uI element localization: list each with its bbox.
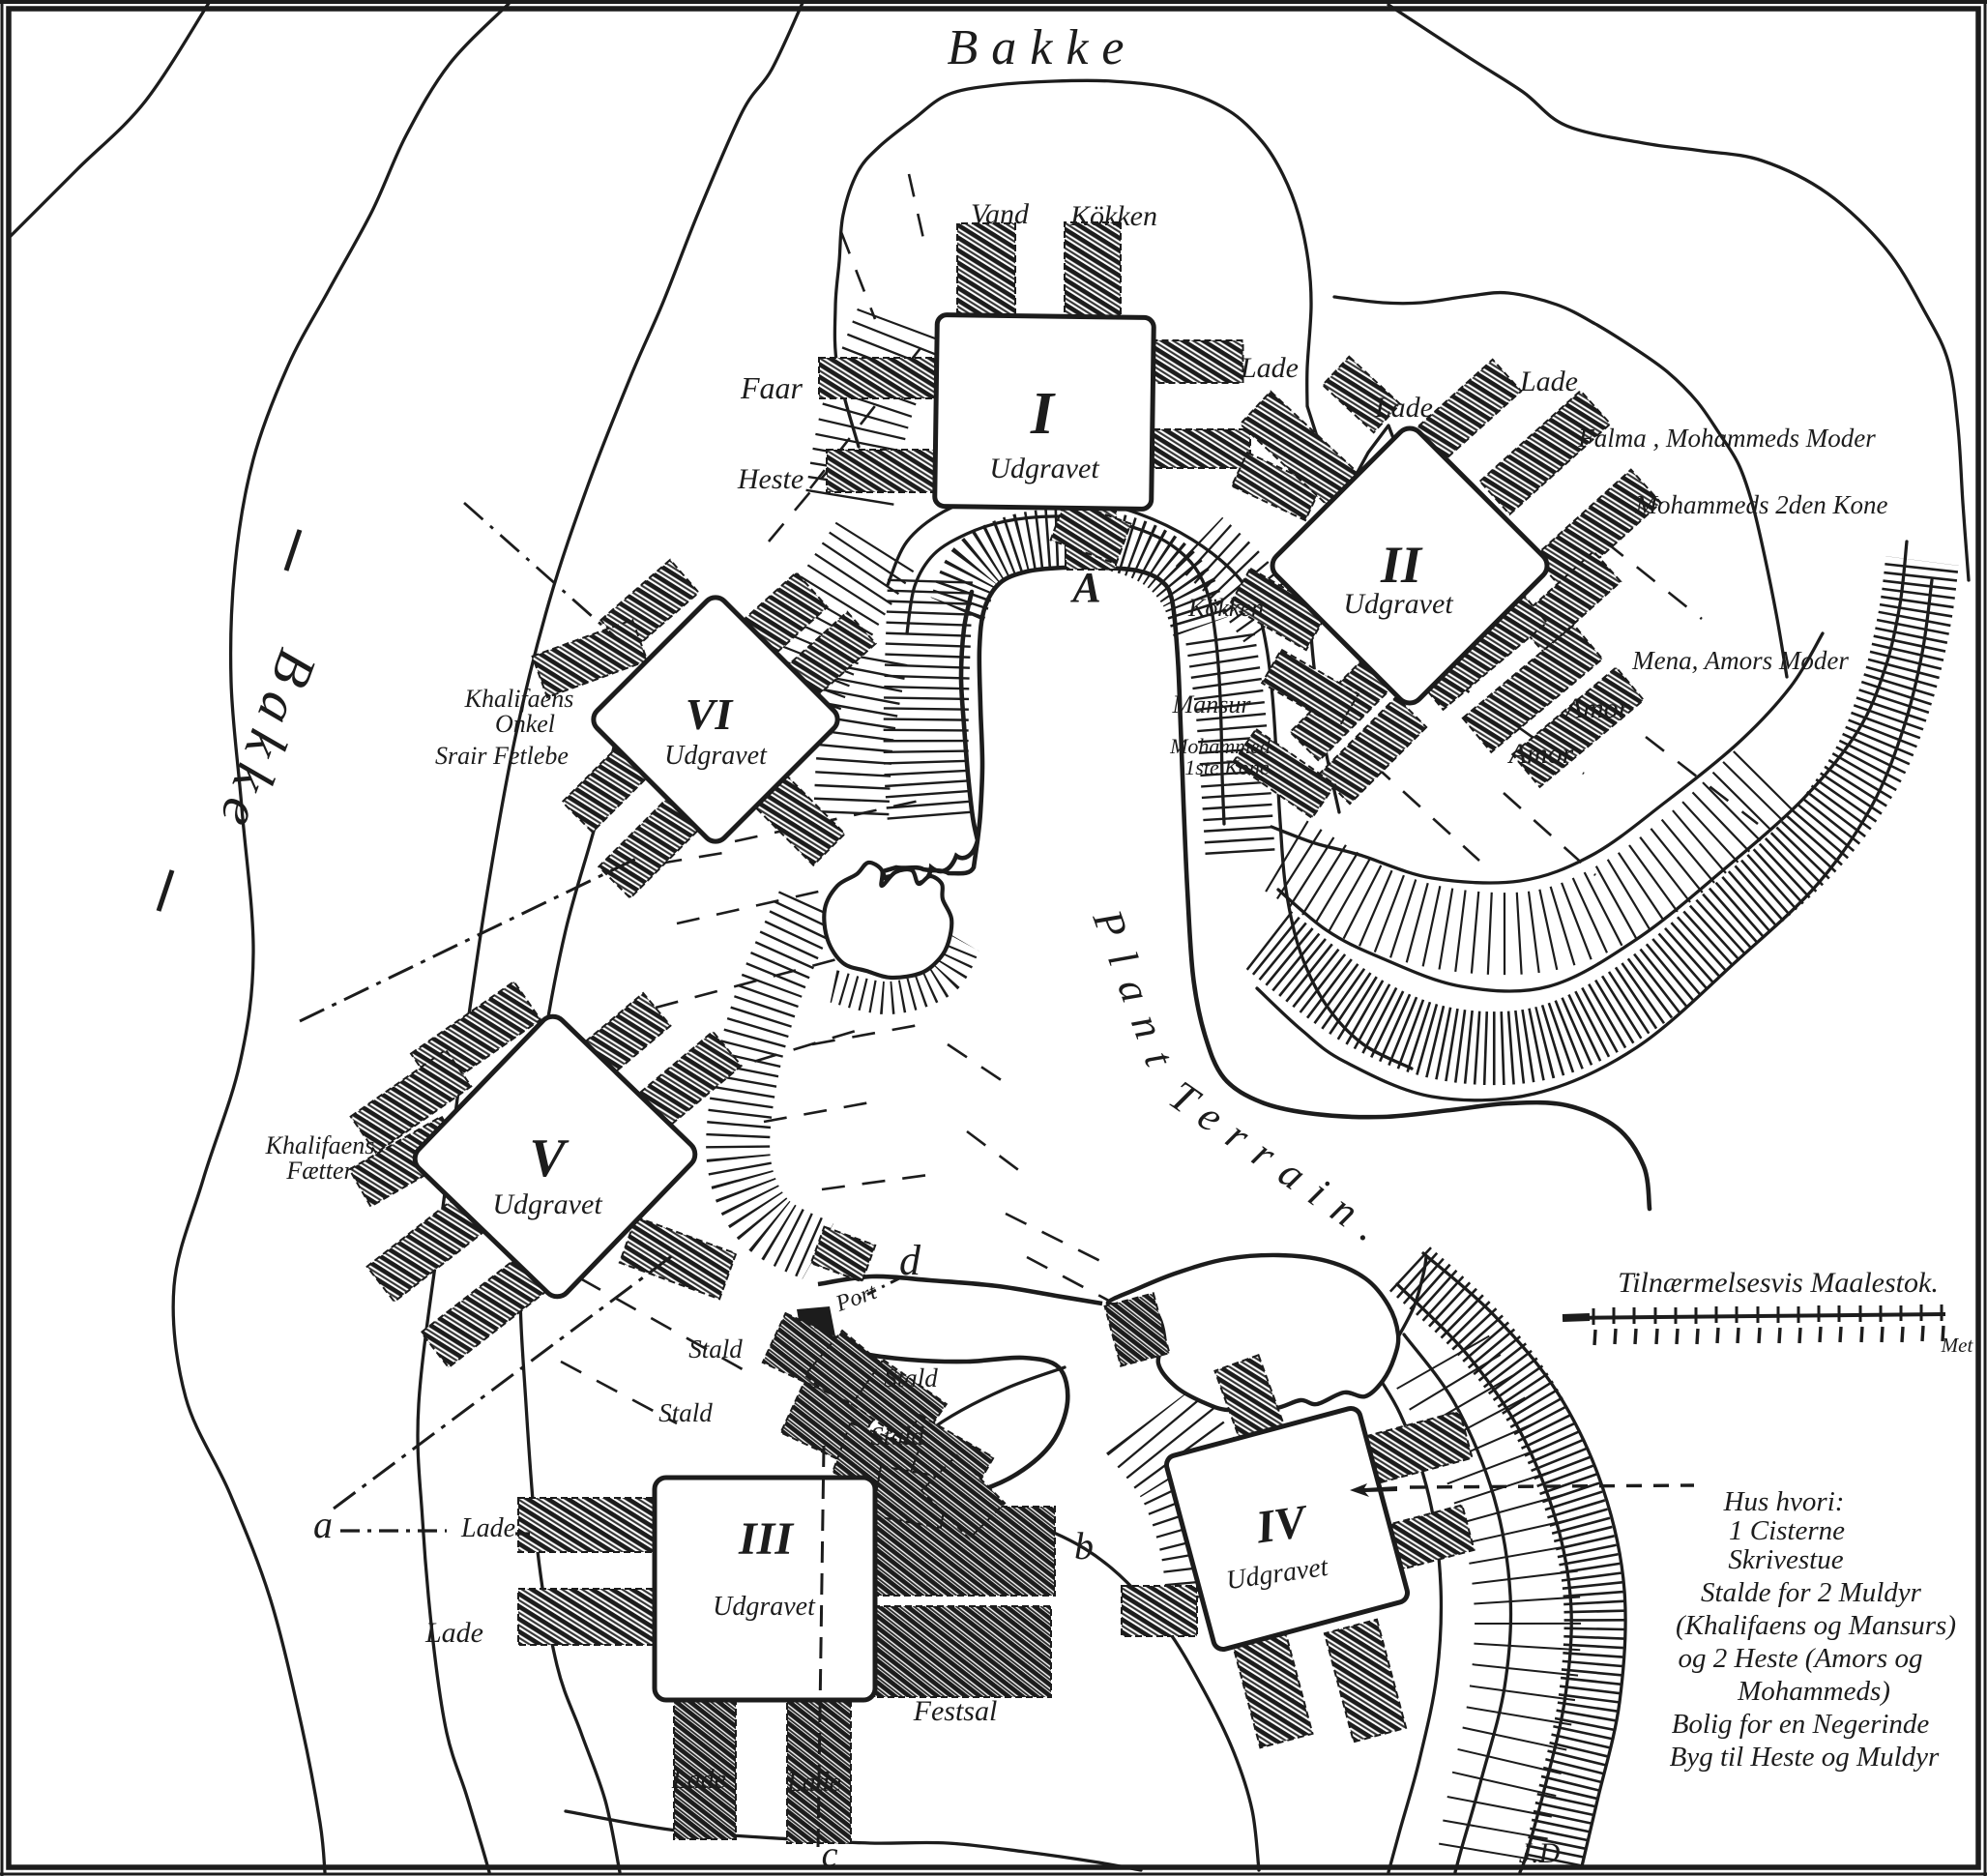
svg-text:a: a [313,1503,333,1546]
svg-text:1 Cisterne: 1 Cisterne [1729,1515,1845,1546]
svg-text:Onkel: Onkel [495,710,555,738]
svg-text:Mohammeds): Mohammeds) [1737,1676,1890,1707]
svg-text:II: II [1380,536,1423,594]
svg-text:Bakke: Bakke [947,20,1137,75]
svg-text:(Khalifaens og Mansurs): (Khalifaens og Mansurs) [1676,1610,1956,1641]
svg-text:Vand: Vand [971,198,1030,230]
svg-text:Festsal: Festsal [913,1695,998,1727]
svg-text:Stald: Stald [870,1422,924,1451]
svg-text:Stalde for 2 Muldyr: Stalde for 2 Muldyr [1701,1577,1922,1608]
svg-text:A: A [1069,564,1100,611]
svg-text:Lade: Lade [424,1617,483,1649]
svg-text:Lade: Lade [460,1513,515,1543]
svg-text:1ste Kone: 1ste Kone [1184,755,1270,779]
svg-text:Khalifaens: Khalifaens [464,685,574,713]
svg-text:Khalifaens: Khalifaens [265,1131,375,1159]
svg-text:b: b [1074,1524,1094,1568]
svg-text:Stald: Stald [688,1334,743,1363]
svg-text:Udgravet: Udgravet [1343,588,1453,620]
svg-text:Lade: Lade [786,1768,841,1798]
svg-text:Udgravet: Udgravet [664,741,768,771]
svg-text:Stald: Stald [884,1363,938,1392]
svg-text:I: I [1030,381,1056,447]
svg-text:Amor: Amor [1563,692,1630,724]
svg-text:Udgravet: Udgravet [989,453,1099,484]
svg-text:VI: VI [686,689,735,739]
svg-text:Udgravet: Udgravet [492,1188,602,1220]
svg-text:Tilnærmelsesvis Maalestok.: Tilnærmelsesvis Maalestok. [1618,1267,1939,1299]
svg-text:Byg til Heste og Muldyr: Byg til Heste og Muldyr [1670,1742,1940,1773]
svg-text:Hus hvori:: Hus hvori: [1723,1486,1845,1517]
svg-text:III: III [738,1513,795,1565]
svg-text:Skrivestue: Skrivestue [1728,1544,1843,1575]
svg-text:Stald: Stald [658,1398,713,1427]
svg-text:Met: Met [1941,1334,1974,1357]
svg-text:Mohammeds 2den Kone: Mohammeds 2den Kone [1635,490,1888,519]
svg-text:Lade: Lade [1374,392,1433,424]
svg-text:Faar: Faar [740,370,804,405]
svg-text:Kökken: Kökken [1069,200,1157,232]
svg-text:Udgravet: Udgravet [713,1592,816,1622]
svg-text:Heste: Heste [737,463,804,495]
svg-text:og 2 Heste (Amors og: og 2 Heste (Amors og [1679,1643,1923,1674]
svg-text:Bolig for en Negerinde: Bolig for en Negerinde [1672,1709,1930,1740]
svg-text:Falma , Mohammeds Moder: Falma , Mohammeds Moder [1577,424,1876,453]
svg-text:Mansur: Mansur [1172,690,1252,718]
svg-text:d: d [899,1237,921,1284]
svg-text:Mena, Amors Moder: Mena, Amors Moder [1631,646,1849,675]
svg-text:Kökken: Kökken [1187,594,1264,622]
svg-text:V: V [529,1129,570,1188]
svg-text:Lade: Lade [1240,352,1299,384]
svg-text:Fætter: Fætter [285,1157,354,1185]
svg-text:Srair Fetlebe: Srair Fetlebe [435,742,569,770]
svg-text:Lade: Lade [1519,366,1578,397]
svg-text:Amor: Amor [1507,738,1574,770]
svg-text:J.D: J.D [1519,1837,1561,1869]
svg-text:Lade: Lade [671,1765,726,1795]
